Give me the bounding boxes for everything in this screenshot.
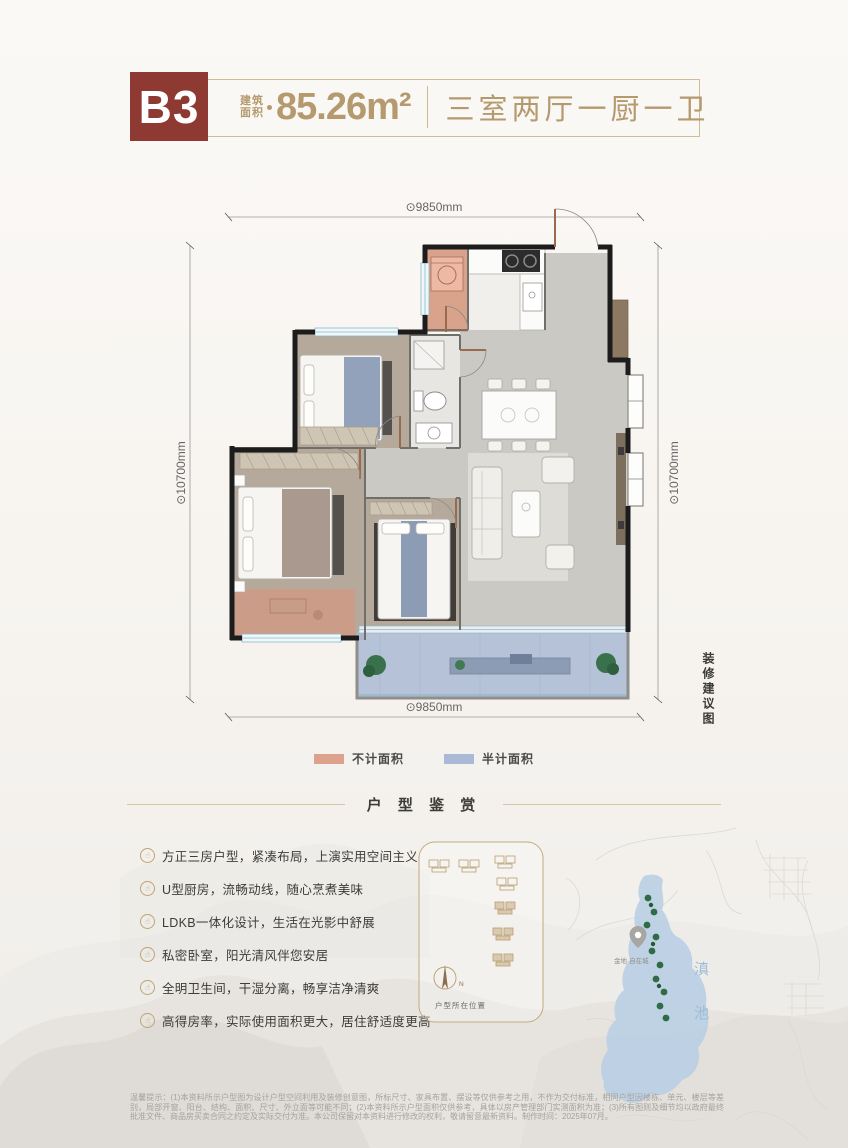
- siteplan-card: N 户型所在位置: [415, 836, 547, 1028]
- dot-icon: [267, 105, 272, 110]
- layout-description: 三室两厅一厨一卫: [446, 86, 710, 128]
- list-item: ☝ LDKB一体化设计，生活在光影中舒展: [140, 912, 432, 931]
- list-item: ☝ 高得房率，实际使用面积更大，居住舒适度更高: [140, 1011, 432, 1030]
- list-item: ☝ 方正三房户型，紧凑布局，上演实用空间主义: [140, 846, 432, 865]
- legend-label: 不计面积: [352, 750, 404, 767]
- floorplan-drawing: ⊙9850mm ⊙9850mm ⊙10700mm ⊙10700mm: [150, 195, 730, 740]
- header-divider: [427, 86, 428, 128]
- feature-text: 全明卫生间，干湿分离，畅享洁净清爽: [162, 978, 380, 997]
- hand-pointer-icon: ☝: [140, 881, 155, 896]
- list-item: ☝ 全明卫生间，干湿分离，畅享洁净清爽: [140, 978, 432, 997]
- feature-text: U型厨房，流畅动线，随心烹煮美味: [162, 879, 363, 898]
- entry-cabinet: [610, 300, 628, 360]
- feature-text: 高得房率，实际使用面积更大，居住舒适度更高: [162, 1011, 431, 1030]
- uncounted-area-swatch-icon: [314, 754, 344, 764]
- legend-item-half-counted: 半计面积: [444, 750, 534, 767]
- legend-item-uncounted: 不计面积: [314, 750, 404, 767]
- area-legend: 不计面积 半计面积: [0, 750, 848, 767]
- lake-name-char1: 滇: [694, 961, 709, 978]
- hand-pointer-icon: ☝: [140, 980, 155, 995]
- unit-label: B3: [139, 80, 200, 134]
- plan-side-note: 装修建议图: [700, 652, 717, 727]
- dim-top: ⊙9850mm: [406, 200, 463, 214]
- unit-badge: B3: [130, 72, 208, 141]
- brochure-page: { "header": { "unit": "B3", "area_label_…: [0, 0, 848, 1148]
- legend-label: 半计面积: [482, 750, 534, 767]
- hand-pointer-icon: ☝: [140, 914, 155, 929]
- washer-icon: [431, 257, 463, 291]
- feature-list: ☝ 方正三房户型，紧凑布局，上演实用空间主义 ☝ U型厨房，流畅动线，随心烹煮美…: [140, 846, 432, 1044]
- list-item: ☝ 私密卧室，阳光清风伴您安居: [140, 945, 432, 964]
- half-counted-area-swatch-icon: [444, 754, 474, 764]
- title-rule-left: [127, 804, 345, 805]
- section-title: 户 型 鉴 赏: [367, 794, 482, 815]
- disclaimer-text: 温馨提示：(1)本资料所示户型图为设计户型空间利用及装修创意图，所标尺寸、家具布…: [130, 1093, 724, 1122]
- siteplan-caption: 户型所在位置: [435, 1000, 486, 1010]
- title-rule-right: [503, 804, 721, 805]
- feature-text: 私密卧室，阳光清风伴您安居: [162, 945, 328, 964]
- section-header: 户 型 鉴 赏: [0, 794, 848, 815]
- dim-right: ⊙10700mm: [667, 441, 681, 504]
- north-label: N: [459, 981, 464, 988]
- lake-name-char2: 池: [694, 1005, 709, 1022]
- feature-text: LDKB一体化设计，生活在光影中舒展: [162, 912, 375, 931]
- header-area-group: 建筑 面积 85.26m² 三室两厅一厨一卫: [240, 80, 710, 134]
- dim-bottom: ⊙9850mm: [406, 700, 463, 714]
- list-item: ☝ U型厨房，流畅动线，随心烹煮美味: [140, 879, 432, 898]
- area-label: 建筑 面积: [240, 95, 264, 119]
- dim-left: ⊙10700mm: [174, 441, 188, 504]
- area-value: 85.26m²: [276, 86, 411, 129]
- pin-caption: 金地·自在城: [614, 956, 649, 965]
- bedroom3-furniture: [370, 502, 456, 621]
- hand-pointer-icon: ☝: [140, 947, 155, 962]
- hand-pointer-icon: ☝: [140, 1013, 155, 1028]
- hand-pointer-icon: ☝: [140, 848, 155, 863]
- feature-text: 方正三房户型，紧凑布局，上演实用空间主义: [162, 846, 418, 865]
